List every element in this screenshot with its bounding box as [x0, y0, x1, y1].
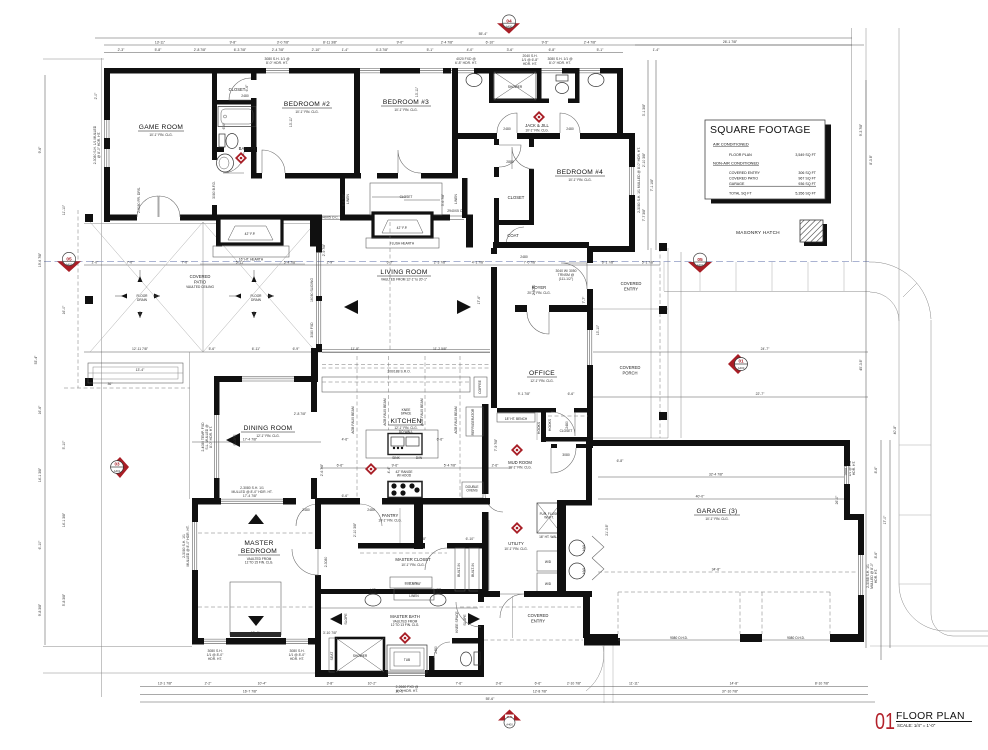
svg-text:BUILT-IN: BUILT-IN [405, 582, 419, 586]
svg-text:6'-6": 6'-6" [342, 494, 350, 498]
svg-text:3'-6": 3'-6" [507, 48, 515, 52]
svg-text:5'-10": 5'-10" [62, 440, 66, 449]
svg-text:W/D: W/D [545, 560, 552, 564]
svg-text:5'-6 7/8": 5'-6 7/8" [342, 193, 346, 206]
svg-text:26'-0": 26'-0" [835, 495, 839, 504]
svg-text:12'-1" FIN. CLG.: 12'-1" FIN. CLG. [530, 379, 553, 383]
svg-text:42" F.P.: 42" F.P. [397, 226, 408, 230]
svg-text:9'-0": 9'-0" [397, 41, 405, 45]
svg-text:SHOWER: SHOWER [353, 654, 368, 658]
svg-text:2-3080 FR. DRS.: 2-3080 FR. DRS. [137, 187, 141, 213]
svg-text:17'-4 7/8": 17'-4 7/8" [243, 438, 258, 442]
svg-text:14'-8": 14'-8" [730, 682, 739, 686]
svg-text:10'-1" FIN. CLG.: 10'-1" FIN. CLG. [295, 110, 318, 114]
svg-text:306 SQ FT: 306 SQ FT [798, 171, 816, 175]
svg-text:3080: 3080 [562, 453, 570, 457]
svg-text:6'-8": 6'-8" [617, 459, 625, 463]
svg-text:OVENS: OVENS [466, 489, 477, 493]
svg-text:8'-0" HDR. HT.: 8'-0" HDR. HT. [549, 61, 571, 65]
svg-text:01: 01 [738, 359, 744, 364]
svg-text:A401: A401 [66, 262, 73, 266]
svg-text:7'-9 7/8": 7'-9 7/8" [494, 438, 498, 451]
svg-text:UTILITY: UTILITY [508, 541, 524, 546]
svg-text:OFFICE: OFFICE [529, 370, 555, 377]
svg-text:KNEE SPACE: KNEE SPACE [455, 611, 459, 633]
svg-text:ENTRY: ENTRY [624, 287, 638, 292]
svg-text:22'-7": 22'-7" [756, 392, 765, 396]
svg-text:2'-10 7/8": 2'-10 7/8" [567, 682, 582, 686]
svg-text:LINEN: LINEN [454, 193, 458, 204]
svg-text:5'-1": 5'-1" [427, 48, 435, 52]
svg-text:HW: HW [582, 544, 586, 550]
svg-text:13'-4": 13'-4" [136, 368, 145, 372]
svg-text:16" HT. HEARTH: 16" HT. HEARTH [239, 258, 264, 262]
svg-text:SQUARE FOOTAGE: SQUARE FOOTAGE [710, 124, 811, 136]
svg-text:MASTER CLOSET: MASTER CLOSET [395, 557, 431, 562]
svg-text:2'-0": 2'-0" [94, 92, 98, 100]
svg-text:2'-10 3/8": 2'-10 3/8" [353, 522, 357, 537]
svg-text:04: 04 [506, 18, 512, 24]
svg-text:SLOPE: SLOPE [344, 613, 348, 625]
svg-text:(111-1/2"): (111-1/2") [559, 277, 573, 281]
svg-text:CLOSET: CLOSET [229, 87, 246, 92]
svg-text:JACK & JILL: JACK & JILL [525, 123, 549, 128]
svg-text:SLOPE: SLOPE [233, 434, 237, 446]
svg-text:COVERED: COVERED [621, 281, 642, 286]
svg-text:HOOKS: HOOKS [537, 421, 541, 434]
svg-text:DQ WALL: DQ WALL [399, 430, 413, 434]
svg-text:1'-4": 1'-4" [342, 48, 350, 52]
svg-text:6'-6": 6'-6" [535, 682, 543, 686]
svg-text:10'-2": 10'-2" [368, 682, 377, 686]
svg-text:5'-4 7/8": 5'-4 7/8" [444, 464, 457, 468]
svg-text:LIVING ROOM: LIVING ROOM [380, 269, 427, 276]
svg-text:2'-9": 2'-9" [327, 261, 335, 265]
svg-text:6'-6": 6'-6" [568, 392, 576, 396]
svg-text:8'-10 7/8": 8'-10 7/8" [815, 682, 830, 686]
svg-text:TUB: TUB [404, 658, 410, 662]
svg-text:2-3080: 2-3080 [324, 557, 328, 568]
svg-text:2480: 2480 [241, 94, 249, 98]
svg-text:HW: HW [582, 567, 586, 573]
svg-text:2'-0": 2'-0" [92, 261, 100, 265]
svg-text:6'-10": 6'-10" [486, 41, 495, 45]
svg-text:COVERED: COVERED [528, 613, 549, 618]
svg-text:2'-4 7/8": 2'-4 7/8" [272, 48, 285, 52]
svg-text:10'-1" FIN. CLG.: 10'-1" FIN. CLG. [568, 178, 591, 182]
svg-text:MULLED @ 8'-0" HDR. HT.: MULLED @ 8'-0" HDR. HT. [186, 525, 190, 566]
svg-text:9'-8 3/8": 9'-8 3/8" [38, 603, 42, 616]
svg-text:AGB FAUX BEAM: AGB FAUX BEAM [351, 406, 355, 434]
svg-text:7'-6": 7'-6" [456, 682, 464, 686]
svg-text:BATH #3: BATH #3 [239, 146, 256, 151]
svg-text:5'-6": 5'-6" [209, 347, 217, 351]
svg-text:1'-4": 1'-4" [653, 48, 661, 52]
svg-text:34'-8": 34'-8" [712, 568, 721, 572]
svg-text:6'-9": 6'-9" [293, 347, 301, 351]
svg-text:10'-1" FIN. CLG.: 10'-1" FIN. CLG. [508, 466, 531, 470]
svg-text:01: 01 [875, 709, 895, 735]
svg-text:MUD ROOM: MUD ROOM [508, 460, 532, 465]
svg-text:CLOSET: CLOSET [508, 195, 525, 200]
svg-text:14'-1 3/8": 14'-1 3/8" [38, 467, 42, 482]
svg-text:FLOOR PLAN: FLOOR PLAN [729, 153, 752, 157]
svg-text:5'-1": 5'-1" [597, 48, 605, 52]
svg-text:40'-0": 40'-0" [696, 495, 705, 499]
svg-text:6'-10": 6'-10" [466, 537, 475, 541]
svg-text:10'-1" FIN. CLG.: 10'-1" FIN. CLG. [504, 547, 527, 551]
svg-text:9080 O.H.D.: 9080 O.H.D. [670, 636, 688, 640]
svg-text:FOYER: FOYER [532, 285, 546, 290]
svg-text:COVERED: COVERED [620, 365, 641, 370]
svg-text:14'-1 3/8": 14'-1 3/8" [62, 512, 66, 527]
svg-text:BEDROOM #4: BEDROOM #4 [557, 169, 603, 176]
svg-text:12 TO 15 FIN. CLG.: 12 TO 15 FIN. CLG. [245, 561, 274, 565]
svg-text:2480: 2480 [302, 508, 310, 512]
svg-text:6'-8" HDR. HT.: 6'-8" HDR. HT. [455, 61, 477, 65]
svg-text:9'-8": 9'-8" [230, 41, 238, 45]
svg-text:19'-6 7/8": 19'-6 7/8" [38, 252, 42, 267]
svg-text:MASTER BATH: MASTER BATH [390, 614, 419, 619]
svg-text:3,549 SQ FT: 3,549 SQ FT [795, 153, 816, 157]
svg-text:TOTAL SQ FT: TOTAL SQ FT [729, 192, 753, 196]
svg-text:D/W: D/W [416, 456, 422, 460]
svg-text:17'-6": 17'-6" [477, 295, 481, 304]
svg-text:W/ HOOD: W/ HOOD [397, 474, 412, 478]
svg-text:7'-0": 7'-0" [127, 261, 135, 265]
svg-text:16080 SLIDING: 16080 SLIDING [310, 278, 314, 302]
svg-text:3'-1 3/8": 3'-1 3/8" [642, 103, 646, 116]
svg-text:5'-8": 5'-8" [155, 48, 163, 52]
svg-text:A401: A401 [114, 469, 121, 473]
svg-text:8'-0" HDR. HT.: 8'-0" HDR. HT. [266, 61, 288, 65]
svg-text:COAT: COAT [507, 233, 519, 238]
svg-text:13'-11": 13'-11" [415, 86, 419, 97]
svg-text:10'-1" FIN. CLG.: 10'-1" FIN. CLG. [705, 517, 728, 521]
svg-text:KITCHEN: KITCHEN [390, 418, 421, 425]
svg-text:2'-9 7/8": 2'-9 7/8" [322, 243, 326, 256]
svg-text:VAULTED FROM 12'-1" to 20'-1": VAULTED FROM 12'-1" to 20'-1" [381, 278, 427, 282]
svg-text:2'-4 7/8": 2'-4 7/8" [584, 41, 597, 45]
svg-text:GARAGE (3): GARAGE (3) [696, 508, 737, 515]
svg-text:13'-1 7/8": 13'-1 7/8" [158, 682, 173, 686]
svg-text:9'-3 7/8": 9'-3 7/8" [859, 123, 863, 136]
svg-text:9'-1 7/8": 9'-1 7/8" [518, 392, 531, 396]
svg-text:W/ HT.: W/ HT. [544, 516, 554, 520]
svg-text:2'-3 7/8": 2'-3 7/8" [434, 261, 447, 265]
svg-text:ENTRY: ENTRY [531, 619, 545, 624]
svg-text:7'-1 1/8": 7'-1 1/8" [650, 178, 654, 191]
svg-text:DRAIN: DRAIN [137, 298, 148, 302]
svg-text:SEAT: SEAT [330, 652, 334, 661]
svg-text:2480: 2480 [367, 508, 375, 512]
svg-text:COVERED ENTRY: COVERED ENTRY [729, 171, 760, 175]
svg-text:40'-8": 40'-8" [893, 425, 897, 434]
svg-text:21'-3 8": 21'-3 8" [605, 523, 609, 535]
svg-text:2480: 2480 [566, 127, 574, 131]
svg-text:11'-8": 11'-8" [351, 347, 360, 351]
svg-text:2880: 2880 [506, 160, 514, 164]
svg-text:SPACE: SPACE [401, 412, 412, 416]
svg-text:2'-3": 2'-3" [118, 48, 126, 52]
svg-text:2'-6": 2'-6" [492, 464, 500, 468]
svg-text:FLOOR PLAN: FLOOR PLAN [896, 711, 965, 722]
svg-text:COVERED PATIO: COVERED PATIO [729, 177, 758, 181]
svg-text:2940X5 O.C.: 2940X5 O.C. [319, 216, 339, 220]
svg-text:32'-4 7/8": 32'-4 7/8" [709, 473, 724, 477]
svg-text:SINK: SINK [392, 456, 400, 460]
svg-text:8'-3 8": 8'-3 8" [869, 154, 873, 164]
svg-text:45'-3 8": 45'-3 8" [859, 358, 863, 370]
svg-text:5'-8 3/8": 5'-8 3/8" [62, 593, 66, 606]
svg-text:AIR CONDITIONED: AIR CONDITIONED [713, 142, 749, 147]
svg-text:10'-1" FIN. CLG.: 10'-1" FIN. CLG. [401, 563, 424, 567]
svg-text:3'-6": 3'-6" [496, 682, 504, 686]
svg-text:12'-1" FIN. CLG.: 12'-1" FIN. CLG. [256, 434, 279, 438]
svg-text:37'-10 7/8": 37'-10 7/8" [722, 690, 739, 694]
svg-text:5'-6 7/8": 5'-6 7/8" [441, 193, 445, 206]
svg-text:10'-1" FIN. CLG.: 10'-1" FIN. CLG. [525, 129, 548, 133]
svg-text:936 SQ FT: 936 SQ FT [798, 182, 816, 186]
svg-text:16'-7 7/8": 16'-7 7/8" [243, 690, 258, 694]
svg-text:HOOKS: HOOKS [548, 418, 552, 431]
svg-text:@ 8'-0" HDR. HT.: @ 8'-0" HDR. HT. [97, 132, 101, 158]
svg-text:2'-2": 2'-2" [205, 682, 213, 686]
svg-text:967 SQ FT: 967 SQ FT [798, 177, 816, 181]
svg-text:8'-11 3/8": 8'-11 3/8" [323, 41, 338, 45]
svg-text:W/D: W/D [545, 582, 552, 586]
svg-text:8'-6": 8'-6" [874, 466, 878, 474]
svg-text:3'-0 7/8": 3'-0 7/8" [277, 41, 290, 45]
svg-text:2480: 2480 [520, 255, 528, 259]
svg-text:MASTER: MASTER [244, 540, 273, 547]
svg-text:206/188 S.R.O.: 206/188 S.R.O. [387, 370, 410, 374]
svg-text:PATIO: PATIO [194, 280, 207, 285]
svg-text:7'-0": 7'-0" [182, 261, 190, 265]
svg-text:COFFEE: COFFEE [478, 379, 482, 393]
svg-text:10'-4": 10'-4" [258, 682, 267, 686]
svg-text:2'-4 7/8": 2'-4 7/8" [441, 41, 454, 45]
svg-text:10'-1" FIN. CLG.: 10'-1" FIN. CLG. [394, 108, 417, 112]
svg-text:7'-0 7/8": 7'-0 7/8" [524, 261, 537, 265]
svg-text:2'-10": 2'-10" [312, 48, 321, 52]
svg-text:SCALE: 1/4" = 1'-0": SCALE: 1/4" = 1'-0" [897, 723, 936, 728]
svg-text:3080 FXD: 3080 FXD [310, 322, 314, 338]
svg-text:AGB FAUX BEAM: AGB FAUX BEAM [454, 406, 458, 434]
svg-text:10'-1" FIN. CLG.: 10'-1" FIN. CLG. [378, 519, 401, 523]
svg-text:VAULTED CEILING: VAULTED CEILING [186, 285, 214, 289]
svg-text:3'-8": 3'-8" [327, 682, 335, 686]
svg-text:13'-11": 13'-11" [289, 116, 293, 127]
svg-text:CLOSET: CLOSET [400, 195, 413, 199]
svg-text:6'-11": 6'-11" [252, 347, 261, 351]
svg-text:NON-AIR CONDITIONED: NON-AIR CONDITIONED [713, 161, 759, 166]
svg-text:BUILT-IN: BUILT-IN [471, 563, 475, 577]
svg-text:6'-3 7/8": 6'-3 7/8" [234, 48, 247, 52]
svg-text:2480: 2480 [565, 421, 569, 429]
svg-text:03: 03 [114, 462, 120, 467]
svg-text:GAME ROOM: GAME ROOM [139, 124, 183, 131]
svg-text:13'-11": 13'-11" [155, 41, 166, 45]
svg-text:SINK: SINK [369, 591, 377, 595]
svg-text:6'-6": 6'-6" [337, 464, 345, 468]
svg-text:36": 36" [108, 382, 114, 386]
svg-text:HDR. HT.: HDR. HT. [208, 657, 222, 661]
svg-text:55'-4": 55'-4" [479, 32, 488, 36]
svg-text:7'-7 3/8": 7'-7 3/8" [642, 208, 646, 221]
svg-text:5,356 SQ FT: 5,356 SQ FT [795, 192, 816, 196]
svg-text:HDR. HT.: HDR. HT. [852, 461, 856, 475]
svg-text:4'-3 7/8": 4'-3 7/8" [376, 48, 389, 52]
svg-text:6'-0" HDR. HT.: 6'-0" HDR. HT. [396, 689, 418, 693]
svg-text:HDR. HT.: HDR. HT. [874, 569, 878, 583]
svg-text:HDR. HT.: HDR. HT. [290, 657, 304, 661]
svg-text:16" HT. WALL: 16" HT. WALL [539, 535, 559, 539]
svg-text:A400: A400 [506, 723, 513, 727]
svg-text:PORCH: PORCH [622, 371, 637, 376]
svg-text:2480: 2480 [503, 127, 511, 131]
svg-text:SINK: SINK [434, 591, 442, 595]
svg-text:7'-7": 7'-7" [582, 296, 586, 304]
svg-text:4'-4": 4'-4" [387, 466, 391, 474]
svg-text:10'-1" FIN. CLG.: 10'-1" FIN. CLG. [149, 133, 172, 137]
svg-text:CLOSET: CLOSET [560, 429, 573, 433]
svg-text:26'-1 7/8": 26'-1 7/8" [723, 40, 738, 44]
svg-text:DRAIN: DRAIN [251, 298, 262, 302]
svg-text:A400: A400 [506, 25, 513, 29]
svg-text:16'-6": 16'-6" [38, 405, 42, 414]
svg-text:2'-10 3/8": 2'-10 3/8" [642, 152, 646, 167]
svg-text:16'-0": 16'-0" [62, 305, 66, 314]
svg-text:BEDROOM: BEDROOM [241, 548, 277, 555]
svg-text:2480: 2480 [434, 646, 438, 654]
svg-text:4'-0": 4'-0" [467, 48, 475, 52]
svg-text:8'-0" HDR. HT.: 8'-0" HDR. HT. [209, 426, 213, 448]
svg-text:42" F.P.: 42" F.P. [245, 232, 256, 236]
svg-text:9'-6": 9'-6" [392, 464, 400, 468]
svg-text:SHOWER: SHOWER [508, 85, 523, 89]
svg-text:6'-1 7/8": 6'-1 7/8" [602, 261, 615, 265]
svg-text:6'-8": 6'-8" [549, 48, 557, 52]
svg-text:FLUSH HEARTH: FLUSH HEARTH [390, 242, 415, 246]
svg-text:4'-6": 4'-6" [342, 438, 350, 442]
svg-text:12'-8 7/8": 12'-8 7/8" [533, 690, 548, 694]
svg-text:BEDROOM #3: BEDROOM #3 [383, 99, 429, 106]
svg-text:5'-1 7/8": 5'-1 7/8" [642, 261, 655, 265]
svg-text:12'-11 7/8": 12'-11 7/8" [132, 347, 149, 351]
svg-text:8'-6": 8'-6" [874, 551, 878, 559]
svg-text:PANTRY: PANTRY [382, 513, 399, 518]
svg-text:BEDROOM #2: BEDROOM #2 [284, 101, 330, 108]
svg-text:COVERED: COVERED [190, 274, 211, 279]
svg-text:17'-0": 17'-0" [883, 515, 887, 524]
svg-text:LINEN: LINEN [346, 193, 350, 204]
svg-text:6'-6": 6'-6" [245, 84, 249, 92]
svg-text:3'-10 7/8": 3'-10 7/8" [323, 631, 338, 635]
svg-text:20'-1" FIN. CLG.: 20'-1" FIN. CLG. [527, 291, 550, 295]
svg-text:9'-6": 9'-6" [38, 146, 42, 154]
svg-text:GARAGE: GARAGE [729, 182, 745, 186]
svg-text:AGB FAUX BEAM: AGB FAUX BEAM [383, 398, 387, 426]
svg-text:MASONRY HATCH: MASONRY HATCH [736, 230, 780, 235]
svg-text:3080 B.F.D.: 3080 B.F.D. [212, 181, 216, 199]
svg-text:LINEN: LINEN [409, 594, 419, 598]
svg-text:REFRIGERATOR: REFRIGERATOR [471, 408, 475, 435]
svg-text:9080 O.H.D.: 9080 O.H.D. [787, 636, 805, 640]
svg-text:MULLED @ 8'-0" HDR. HT.: MULLED @ 8'-0" HDR. HT. [231, 490, 272, 494]
svg-text:11'-10": 11'-10" [62, 204, 66, 215]
svg-text:55'-6": 55'-6" [486, 697, 495, 701]
svg-text:12 TO 13 FIN. CLG.: 12 TO 13 FIN. CLG. [391, 623, 420, 627]
svg-text:05: 05 [66, 256, 72, 262]
svg-text:11'-11": 11'-11" [629, 682, 640, 686]
svg-text:2'-6 7/8": 2'-6 7/8" [320, 463, 324, 476]
svg-text:2-3080 S.H. 1/1 MULLED @ 8'-0": 2-3080 S.H. 1/1 MULLED @ 8'-0" HDR. HT. [637, 147, 641, 213]
svg-text:2'-8 7/8": 2'-8 7/8" [294, 412, 307, 416]
svg-text:9'-5": 9'-5" [542, 41, 550, 45]
svg-text:11'-2 5/8": 11'-2 5/8" [433, 347, 448, 351]
svg-text:6'-10": 6'-10" [38, 540, 42, 549]
svg-text:6'-7": 6'-7" [387, 261, 395, 265]
svg-text:13'-10": 13'-10" [596, 324, 600, 335]
svg-text:05: 05 [697, 257, 703, 263]
svg-text:A401: A401 [697, 263, 704, 267]
svg-text:24'-7": 24'-7" [761, 347, 770, 351]
svg-text:4'-1 7/8": 4'-1 7/8" [472, 261, 485, 265]
svg-text:53'-4": 53'-4" [34, 355, 38, 364]
svg-text:HDR. HT.: HDR. HT. [523, 62, 537, 66]
svg-text:2'-8 7/8": 2'-8 7/8" [194, 48, 207, 52]
svg-text:A400: A400 [738, 366, 745, 370]
svg-text:BUILT-IN: BUILT-IN [457, 563, 461, 577]
svg-text:18" HT. BENCH: 18" HT. BENCH [505, 417, 528, 421]
svg-text:6'-6": 6'-6" [222, 122, 226, 130]
svg-text:17'-4 7/8": 17'-4 7/8" [243, 494, 258, 498]
svg-text:DINING ROOM: DINING ROOM [244, 425, 293, 432]
